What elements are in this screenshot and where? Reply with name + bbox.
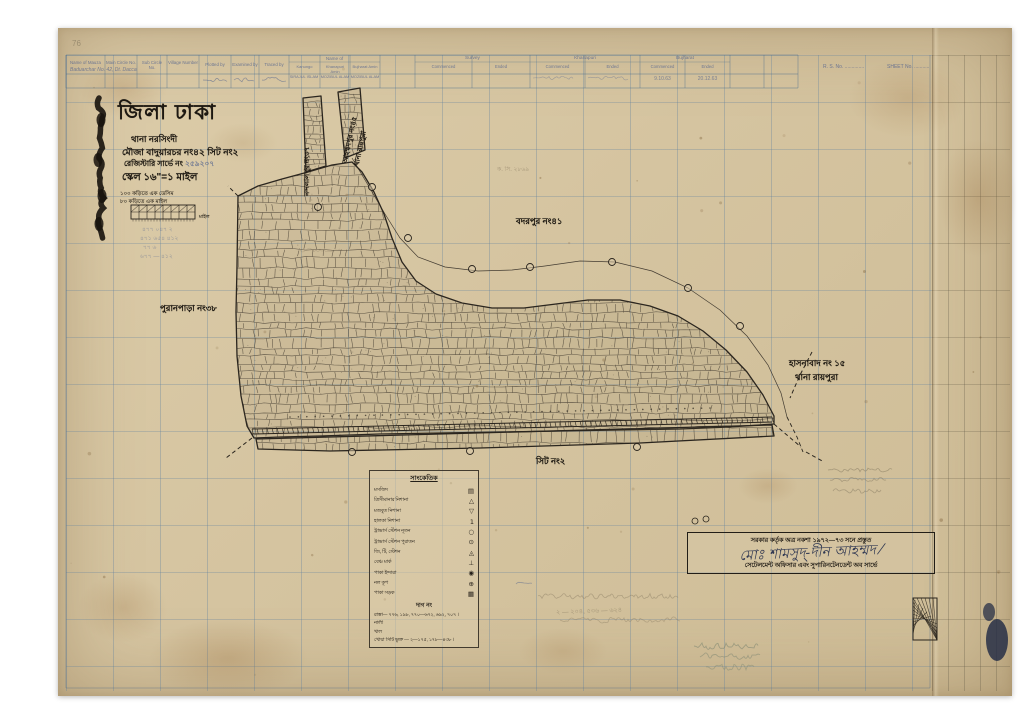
legend-row: ত্রিসীমানার নিশানা△ <box>374 496 474 506</box>
legend-symbol: ⊥ <box>468 560 474 567</box>
table-subcol-header: Ended <box>472 64 530 69</box>
legend-label: ট্রাভার্স স্টেশন নূতন <box>374 528 410 536</box>
legend-symbol: ⊙ <box>469 539 474 546</box>
legend-symbol: ○ <box>468 529 474 536</box>
legend-title: সাংকেতিক <box>374 473 474 484</box>
mauza-handwritten-value: Baduarchar No. 42, Dt. Dacca <box>70 67 137 73</box>
scale-note-2: ৮০ কড়িতে এক মাইল <box>120 199 167 207</box>
legend-row: হালকা নিশানা1 <box>374 517 474 527</box>
district-title: জিলা ঢাকা <box>118 96 217 131</box>
table-subcol-header: Commenced <box>640 64 685 69</box>
scanned-cadastral-map-page: { "page": { "corner_number": "76", "rs_n… <box>0 0 1024 723</box>
table-group-header: Survey <box>415 56 530 61</box>
table-subcol-header: Kanungo <box>290 64 319 69</box>
mouza-line: মৌজা বাদুয়ারচর নং৪২ সিট নং২ <box>122 145 238 160</box>
label-puranpara: পুরানপাড়া নং৩৮ <box>160 302 217 316</box>
label-badarpur: বদরপুর নং৪১ <box>516 215 562 229</box>
bujharat-ended-date: 20.12.63 <box>685 76 730 82</box>
survey-no-handwritten: ২৫৯২০৭ <box>185 159 214 168</box>
table-col-header: Examined by <box>232 62 258 67</box>
table-subcol-header: Commenced <box>530 64 585 69</box>
table-col-header: Plotted by <box>200 62 230 67</box>
legend-label: জি, টি, স্টেশন <box>374 549 400 557</box>
legend-label: ট্রাভার্স স্টেশন পুরাতন <box>374 539 415 547</box>
legend-label: মজবুত নিশানা <box>374 508 401 516</box>
legend-symbol: ◬ <box>469 550 474 557</box>
legend-box: সাংকেতিক মসজিদ▤ ত্রিসীমানার নিশানা△ মজবু… <box>369 470 479 648</box>
pencil-note-kc: ক. সি. ২৮৬৯ <box>497 164 529 175</box>
rs-no-label: R. S. No. .............. <box>823 64 864 70</box>
sheet-no-label: SHEET No. ........... <box>887 64 929 70</box>
legend-row: মজবুত নিশানা▽ <box>374 507 474 517</box>
bujharat-amin-name-value: MOZIBUL ALAM <box>350 74 380 79</box>
table-col-header: Main Circle No. <box>106 60 136 65</box>
legend-symbol: ▽ <box>469 508 474 515</box>
legend-symbol: 1 <box>470 519 474 526</box>
legend-label: বেঞ্চ মার্ক <box>374 559 391 567</box>
survey-no-printed: রেজিস্টারি সার্ভে নং <box>124 159 183 168</box>
blue-note-row: ৬৭৭ — ৪১২ <box>140 251 173 262</box>
table-group-header: Bujharat <box>640 56 730 61</box>
legend-label: নল কূপ <box>374 580 388 588</box>
khanapuri-amin-name-value: MOZIBUL ALAM <box>320 74 350 79</box>
table-col-header: Sub Circle No. <box>138 60 166 70</box>
label-hasnabad-2: থানা রায়পুরা <box>795 371 838 385</box>
pencil-note-bottom: ২ — ২০৪, ৫৩৬ — ৬২৪ <box>556 605 622 618</box>
legend-row: মসজিদ▤ <box>374 486 474 496</box>
table-col-header: Village Number <box>168 60 198 65</box>
legend-label: হালকা নিশানা <box>374 518 400 526</box>
dag-row: নালী <box>374 620 474 628</box>
legend-label: পাকা সড়ক <box>374 590 394 598</box>
table-subcol-header: Khanapuri Amin <box>321 64 349 74</box>
legend-row: পাকা ইন্দারা◉ <box>374 568 474 578</box>
table-group-header: Name of <box>289 56 380 61</box>
label-hasnabad-1: হাসনাবাদ নং ১৫ <box>789 357 845 371</box>
scalebar-label: মাইল <box>199 214 210 222</box>
table-col-header: Name of Mauza <box>67 60 104 65</box>
scale-line: স্কেল ১৬"=১ মাইল <box>122 170 197 187</box>
legend-row: ট্রাভার্স স্টেশন পুরাতন⊙ <box>374 537 474 547</box>
dag-row: খাল <box>374 629 474 637</box>
legend-row: নল কূপ⊕ <box>374 579 474 589</box>
legend-row: জি, টি, স্টেশন◬ <box>374 548 474 558</box>
dag-row: রাস্তা— ৭৭৬, ১৯৮, ৭৭০—৬৭২, ৬৯২, ৭০৭ । <box>374 612 474 620</box>
table-subcol-header: Commenced <box>415 64 472 69</box>
kanungo-name-value: SIRAJUL ISLAM <box>288 74 320 79</box>
table-subcol-header: Bujharat Amin <box>351 64 379 69</box>
legend-label: মসজিদ <box>374 487 388 495</box>
table-subcol-header: Ended <box>685 64 730 69</box>
label-nandalalpur: নন্দলালপুর নং৩৭ <box>301 147 313 196</box>
legend-symbol: ▦ <box>468 591 474 598</box>
legend-symbol: ⊕ <box>469 581 474 588</box>
bujharat-commenced-date: 9.10.63 <box>640 76 685 82</box>
dag-heading: দাগ নং <box>374 601 474 611</box>
page-corner-number: 76 <box>72 39 81 48</box>
legend-label: ত্রিসীমানার নিশানা <box>374 497 408 505</box>
scale-note-1: ১০০ কড়িতে এক ডেসিম <box>120 191 174 199</box>
legend-symbol: △ <box>469 498 474 505</box>
table-col-header: Traced by <box>260 62 288 67</box>
legend-row: ট্রাভার্স স্টেশন নূতন○ <box>374 527 474 537</box>
legend-label: পাকা ইন্দারা <box>374 570 396 578</box>
legend-symbol: ▤ <box>468 488 474 495</box>
legend-row: বেঞ্চ মার্ক⊥ <box>374 558 474 568</box>
legend-symbol: ◉ <box>468 570 474 577</box>
table-group-header: Khanapuri <box>530 56 640 61</box>
legend-row: পাকা সড়ক▦ <box>374 589 474 599</box>
table-subcol-header: Ended <box>585 64 640 69</box>
label-sheet-no: সিট নং২ <box>536 455 565 469</box>
official-stamp-box: সরকার কর্তৃক অত্র নকশা ১৯৭২—৭৩ সনে প্রস্… <box>687 532 935 574</box>
dag-row: খোয়া সিটি ভুক্ত — ২—১৭৫, ১৭৮—৪৩৮ । <box>374 637 474 645</box>
